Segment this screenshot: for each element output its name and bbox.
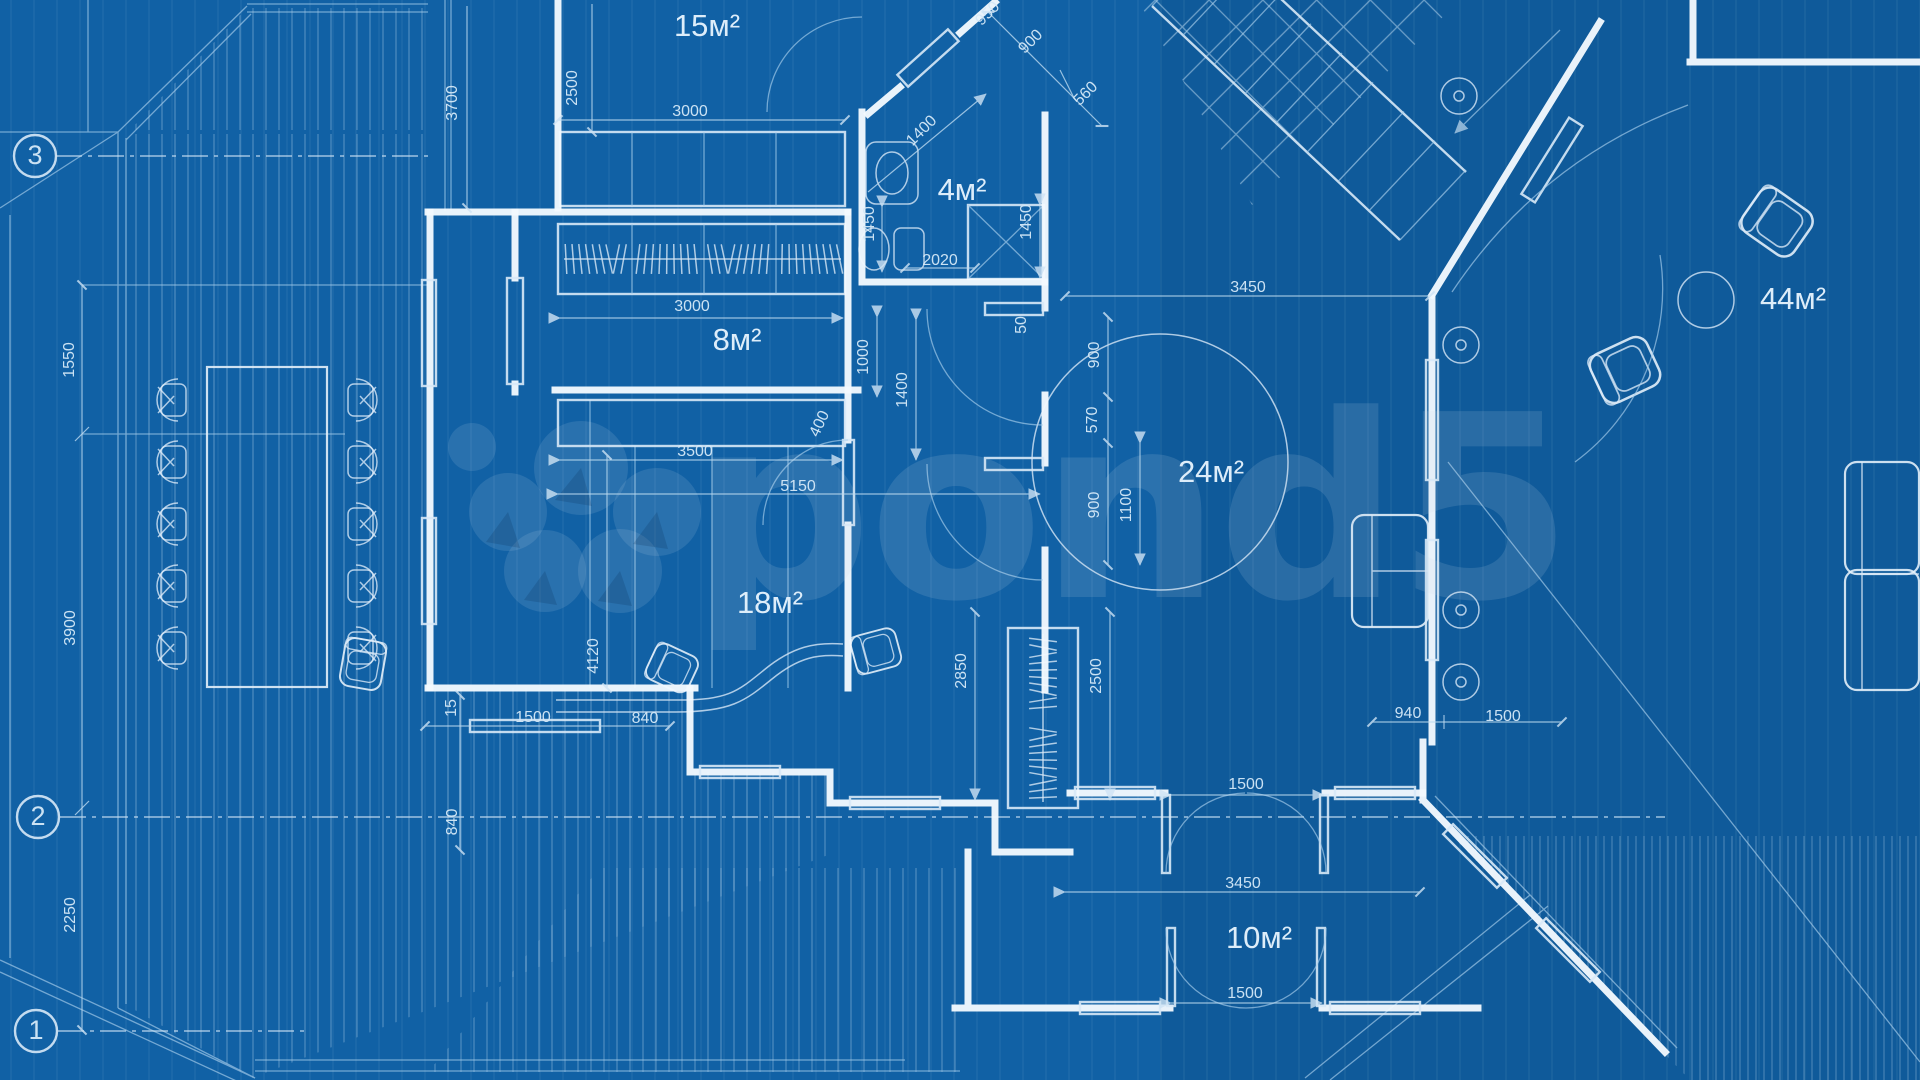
dim-label: 1450 — [1018, 204, 1035, 240]
dim-label: 3450 — [1225, 875, 1261, 892]
dim-label: 1500 — [1228, 776, 1264, 793]
dim-label: 840 — [444, 809, 461, 836]
dim-label: 1500 — [1485, 708, 1521, 725]
dim-label: 940 — [1395, 705, 1422, 722]
dim-label: 1450 — [861, 206, 878, 242]
room-area-label: 15м² — [674, 8, 740, 43]
room-area-label: 18м² — [737, 585, 803, 620]
room-area-label: 8м² — [713, 322, 762, 357]
dim-label: 3500 — [677, 443, 713, 460]
grid-marker-label: 3 — [27, 140, 42, 170]
dim-label: 2500 — [564, 70, 581, 106]
room-area-label: 44м² — [1760, 281, 1826, 316]
dim-label: 1400 — [894, 372, 911, 408]
dim-label: 570 — [1084, 407, 1101, 434]
grid-marker-label: 2 — [30, 801, 45, 831]
dim-label: 1500 — [1227, 985, 1263, 1002]
dim-label: 3450 — [1230, 279, 1266, 296]
dim-label: 1000 — [855, 339, 872, 375]
dim-label: 1550 — [61, 342, 78, 378]
dim-label: 900 — [1086, 492, 1103, 519]
room-area-label: 4м² — [938, 172, 987, 207]
dim-label: 3000 — [672, 103, 708, 120]
dim-label: 50 — [1013, 316, 1030, 334]
dim-label: 3000 — [674, 298, 710, 315]
dim-label: 5150 — [780, 478, 816, 495]
dim-label: 1100 — [1118, 488, 1135, 523]
dim-label: 4120 — [585, 638, 602, 674]
dim-label: 3700 — [444, 85, 461, 121]
dim-label: 2250 — [62, 897, 79, 933]
room-area-label: 24м² — [1178, 454, 1244, 489]
blueprint-screenshot: pond5 25003 — [0, 0, 1920, 1080]
blueprint-canvas: pond5 25003 — [0, 0, 1920, 1080]
dim-label: 2850 — [953, 653, 970, 689]
dim-label: 15 — [443, 699, 460, 717]
dim-label: 900 — [1086, 342, 1103, 369]
dim-label: 3900 — [62, 610, 79, 646]
room-area-label: 10м² — [1226, 920, 1292, 955]
dim-label: 2020 — [922, 252, 958, 269]
dim-label: 2500 — [1088, 658, 1105, 694]
dim-label: 840 — [632, 710, 659, 727]
grid-marker-label: 1 — [28, 1015, 43, 1045]
dim-label: 1500 — [515, 709, 551, 726]
